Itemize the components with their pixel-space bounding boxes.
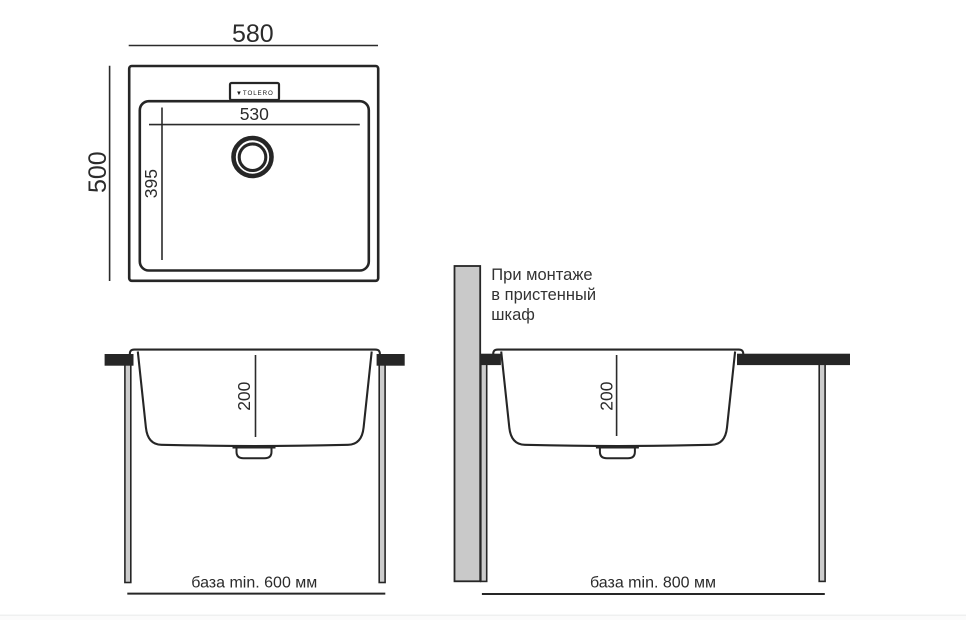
svg-text:база min. 600 мм: база min. 600 мм	[191, 575, 317, 592]
svg-text:530: 530	[240, 104, 269, 124]
svg-text:в пристенный: в пристенный	[491, 286, 596, 304]
svg-text:580: 580	[232, 20, 274, 48]
svg-text:200: 200	[234, 381, 254, 410]
svg-text:▼TOLERO: ▼TOLERO	[236, 90, 274, 97]
svg-text:395: 395	[141, 169, 161, 198]
svg-text:500: 500	[84, 151, 112, 193]
svg-text:При монтаже: При монтаже	[491, 266, 592, 284]
svg-text:200: 200	[597, 381, 617, 410]
svg-text:шкаф: шкаф	[491, 306, 535, 324]
svg-text:база min. 800 мм: база min. 800 мм	[590, 575, 716, 592]
